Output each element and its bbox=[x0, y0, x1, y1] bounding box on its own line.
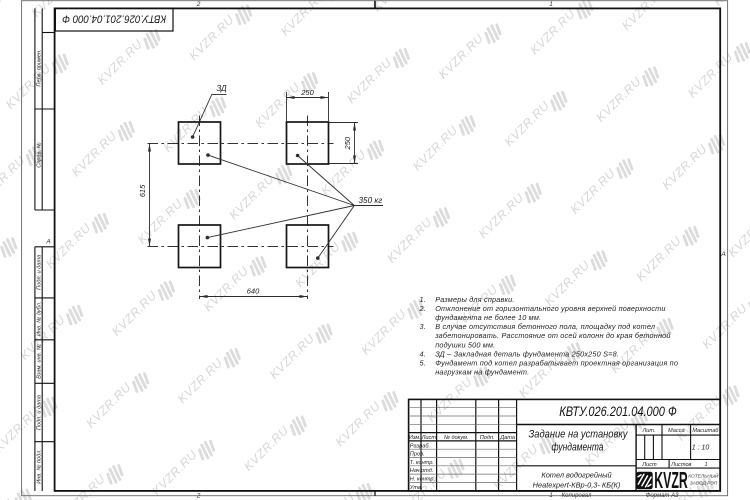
svg-text:Инв. № подл.: Инв. № подл. bbox=[37, 449, 43, 484]
svg-text:Котел водогрейный: Котел водогрейный bbox=[541, 470, 611, 479]
svg-text:KVZR.RU: KVZR.RU bbox=[358, 307, 409, 358]
svg-text:2.: 2. bbox=[419, 304, 426, 313]
svg-text:KVZR.RU: KVZR.RU bbox=[267, 331, 318, 382]
svg-text:KVZR.RU: KVZR.RU bbox=[674, 393, 725, 444]
svg-text:Дата: Дата bbox=[499, 435, 515, 441]
svg-text:KVZR.RU: KVZR.RU bbox=[69, 129, 120, 180]
svg-text:KVZR.RU: KVZR.RU bbox=[659, 142, 710, 193]
svg-text:Формат А3: Формат А3 bbox=[646, 493, 679, 499]
svg-text:KVZR.RU: KVZR.RU bbox=[43, 221, 94, 272]
svg-text:Справ. №: Справ. № bbox=[37, 142, 43, 167]
svg-text:Подп. и дата: Подп. и дата bbox=[37, 255, 43, 290]
svg-text:KVZR.RU: KVZR.RU bbox=[568, 166, 619, 217]
svg-text:KVZR.RU: KVZR.RU bbox=[278, 0, 329, 39]
svg-text:Масса: Масса bbox=[668, 428, 685, 434]
svg-text:KVZR.RU: KVZR.RU bbox=[226, 172, 277, 223]
svg-text:Разраб.: Разраб. bbox=[410, 443, 430, 449]
svg-text:1: 1 bbox=[549, 493, 552, 499]
svg-text:KVZR.RU: KVZR.RU bbox=[619, 0, 670, 33]
svg-text:Фундамент под котел разрабатыв: Фундамент под котел разрабатывает проект… bbox=[435, 358, 678, 367]
svg-text:4.: 4. bbox=[420, 349, 426, 358]
svg-text:640: 640 bbox=[247, 287, 260, 296]
svg-text:№ докум.: № докум. bbox=[444, 435, 469, 441]
svg-text:KVZR.RU: KVZR.RU bbox=[175, 356, 226, 407]
svg-text:А: А bbox=[720, 251, 725, 258]
svg-text:KVZR.RU: KVZR.RU bbox=[95, 37, 146, 88]
svg-text:1.: 1. bbox=[420, 295, 426, 304]
svg-text:Задание на установку: Задание на установку bbox=[529, 428, 629, 440]
svg-text:Размеры для справки.: Размеры для справки. bbox=[435, 295, 514, 304]
svg-text:Лит.: Лит. bbox=[641, 428, 655, 434]
svg-text:KVZR.RU: KVZR.RU bbox=[436, 31, 487, 82]
svg-text:фундамента: фундамента bbox=[552, 441, 604, 453]
svg-text:KVZR.RU: KVZR.RU bbox=[711, 0, 750, 8]
svg-text:забетонировать. Расстояние от: забетонировать. Расстояние от осей колон… bbox=[434, 331, 670, 340]
svg-text:1 : 10: 1 : 10 bbox=[692, 445, 710, 452]
svg-text:1: 1 bbox=[704, 462, 707, 468]
svg-text:KVZR.RU: KVZR.RU bbox=[476, 190, 527, 241]
svg-text:Heatexpert-КВр-0,3- КБ(К): Heatexpert-КВр-0,3- КБ(К) bbox=[533, 480, 621, 489]
svg-text:KVZR.RU: KVZR.RU bbox=[344, 55, 395, 106]
svg-text:KVZR.RU: KVZR.RU bbox=[201, 264, 252, 315]
svg-text:1: 1 bbox=[549, 1, 553, 8]
svg-text:Масштаб: Масштаб bbox=[692, 428, 719, 434]
svg-text:Утв.: Утв. bbox=[409, 485, 423, 491]
svg-text:фундамента не более 10 мм.: фундамента не более 10 мм. bbox=[435, 313, 541, 322]
svg-text:Перв. примен.: Перв. примен. bbox=[37, 49, 43, 86]
svg-text:KVZR.RU: KVZR.RU bbox=[542, 258, 593, 309]
svg-text:ЗД – Закладная деталь фундамен: ЗД – Закладная деталь фундамента 250х250… bbox=[435, 349, 619, 358]
svg-text:250: 250 bbox=[343, 136, 352, 150]
svg-text:В случае отсутствия бетонного: В случае отсутствия бетонного пола, площ… bbox=[435, 322, 655, 331]
svg-text:Подп.: Подп. bbox=[480, 435, 495, 441]
svg-text:3.: 3. bbox=[420, 322, 426, 331]
svg-text:КВТУ.026.201.04.000 Ф: КВТУ.026.201.04.000 Ф bbox=[62, 12, 166, 24]
svg-text:Копировал: Копировал bbox=[562, 493, 592, 499]
svg-text:А: А bbox=[45, 239, 50, 246]
svg-text:KVZR.RU: KVZR.RU bbox=[725, 209, 750, 260]
svg-text:KVZR: KVZR bbox=[654, 467, 688, 493]
svg-text:KVZR.RU: KVZR.RU bbox=[370, 0, 421, 14]
svg-text:KVZR.RU: KVZR.RU bbox=[699, 301, 750, 352]
svg-text:Нач.отд.: Нач.отд. bbox=[410, 468, 434, 474]
svg-text:KVZR.RU: KVZR.RU bbox=[634, 234, 685, 285]
svg-text:KVZR.RU: KVZR.RU bbox=[0, 245, 2, 296]
svg-text:KVZR.RU: KVZR.RU bbox=[593, 74, 644, 125]
svg-text:КОТЕЛЬНЫЙ: КОТЕЛЬНЫЙ bbox=[688, 472, 719, 480]
svg-text:KVZR.RU: KVZR.RU bbox=[83, 380, 134, 431]
svg-text:KVZR.RU: KVZR.RU bbox=[333, 399, 384, 450]
svg-text:350 кг: 350 кг bbox=[359, 196, 383, 205]
svg-text:KVZR.RU: KVZR.RU bbox=[186, 12, 237, 63]
svg-text:2: 2 bbox=[196, 1, 201, 8]
svg-text:Лист: Лист bbox=[421, 435, 437, 441]
svg-text:Т. контр.: Т. контр. bbox=[410, 460, 434, 466]
svg-text:нагрузкам на фундамент.: нагрузкам на фундамент. bbox=[435, 367, 529, 376]
svg-text:KVZR.RU: KVZR.RU bbox=[384, 215, 435, 266]
svg-text:подушки 500 мм.: подушки 500 мм. bbox=[435, 340, 495, 349]
svg-text:615: 615 bbox=[138, 184, 147, 197]
svg-text:Пров.: Пров. bbox=[410, 452, 425, 458]
svg-text:250: 250 bbox=[300, 88, 314, 97]
svg-text:Взам. инв. №: Взам. инв. № bbox=[37, 344, 43, 379]
svg-text:KVZR.RU: KVZR.RU bbox=[3, 61, 54, 112]
svg-text:Н. контр.: Н. контр. bbox=[410, 477, 435, 483]
svg-text:KVZR.RU: KVZR.RU bbox=[252, 80, 303, 131]
svg-text:Изм.: Изм. bbox=[409, 435, 421, 441]
svg-text:Подп. и дата: Подп. и дата bbox=[37, 395, 43, 430]
svg-text:5.: 5. bbox=[420, 358, 426, 367]
svg-text:KVZR.RU: KVZR.RU bbox=[502, 99, 553, 150]
svg-text:2: 2 bbox=[196, 492, 201, 499]
svg-text:KVZR.RU: KVZR.RU bbox=[109, 288, 160, 339]
svg-text:КВТУ.026.201.04.000 Ф: КВТУ.026.201.04.000 Ф bbox=[559, 404, 677, 419]
svg-text:Отклонение от горизонтального: Отклонение от горизонтального уровня вер… bbox=[435, 304, 665, 313]
svg-text:ЗАВОД РЭП: ЗАВОД РЭП bbox=[690, 480, 718, 486]
svg-text:KVZR.RU: KVZR.RU bbox=[318, 147, 369, 198]
svg-text:Инв. № дубл.: Инв. № дубл. bbox=[37, 302, 43, 336]
svg-text:KVZR.RU: KVZR.RU bbox=[410, 123, 461, 174]
svg-text:KVZR.RU: KVZR.RU bbox=[527, 7, 578, 58]
svg-text:KVZR.RU: KVZR.RU bbox=[0, 496, 16, 500]
svg-text:KVZR.RU: KVZR.RU bbox=[241, 423, 292, 474]
svg-text:KVZR.RU: KVZR.RU bbox=[0, 153, 28, 204]
svg-text:KVZR.RU: KVZR.RU bbox=[685, 50, 736, 101]
svg-text:ЗД: ЗД bbox=[216, 84, 227, 93]
